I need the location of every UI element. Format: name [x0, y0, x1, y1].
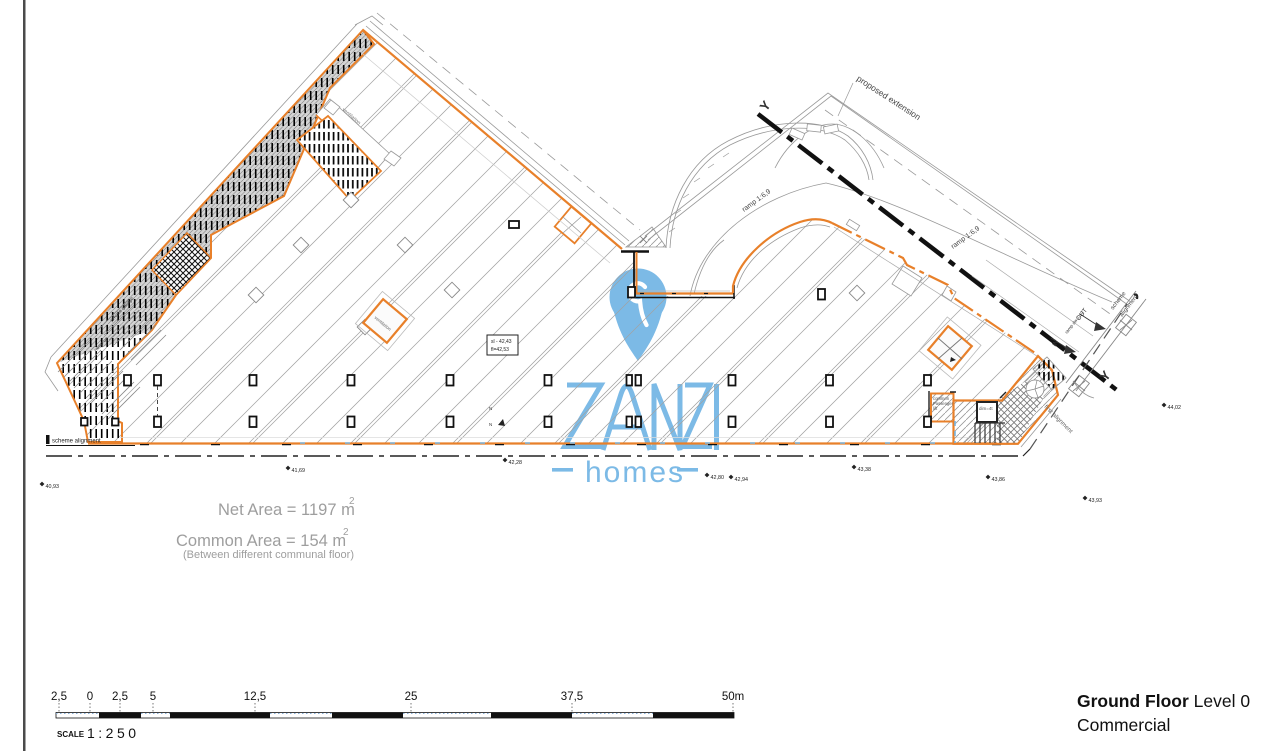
svg-text:5: 5: [150, 691, 156, 703]
svg-text:SCALE: SCALE: [57, 730, 85, 739]
svg-text:43,93: 43,93: [1089, 498, 1103, 504]
svg-text:Y: Y: [1097, 368, 1114, 384]
svg-text:2: 2: [343, 527, 349, 538]
svg-text:12,5: 12,5: [244, 691, 266, 703]
svg-text:42,28: 42,28: [509, 460, 523, 466]
svg-text:N: N: [489, 422, 492, 427]
svg-text:proposed extension: proposed extension: [855, 73, 923, 122]
svg-text:41,69: 41,69: [292, 468, 306, 474]
svg-text:42,94: 42,94: [735, 477, 749, 483]
svg-text:1:250: 1:250: [87, 725, 140, 741]
svg-text:25: 25: [405, 691, 418, 703]
svg-text:ramp 1:6,9: ramp 1:6,9: [950, 225, 981, 250]
svg-text:first alignment: first alignment: [1043, 404, 1074, 435]
svg-text:sl - 42,43: sl - 42,43: [491, 339, 512, 345]
svg-text:homes: homes: [585, 456, 685, 489]
svg-text:44,02: 44,02: [1168, 405, 1182, 411]
svg-text:Net Area = 1197 m: Net Area = 1197 m: [218, 501, 355, 519]
svg-text:43,86: 43,86: [992, 477, 1006, 483]
svg-text:0: 0: [87, 691, 93, 703]
svg-text:N: N: [489, 406, 492, 411]
svg-text:43,38: 43,38: [858, 467, 872, 473]
svg-text:fl=42,53: fl=42,53: [491, 347, 509, 353]
svg-text:dim=4t: dim=4t: [979, 406, 993, 411]
svg-text:2,5: 2,5: [112, 691, 128, 703]
svg-text:(Between different communal fl: (Between different communal floor): [183, 549, 354, 561]
svg-text:Y: Y: [757, 98, 774, 114]
svg-text:Common Area = 154 m: Common Area = 154 m: [176, 532, 346, 550]
svg-text:50m: 50m: [722, 691, 744, 703]
svg-text:2: 2: [349, 496, 355, 507]
svg-text:37,5: 37,5: [561, 691, 583, 703]
svg-text:ramp 1:6,9: ramp 1:6,9: [741, 188, 772, 213]
svg-text:scheme alignment: scheme alignment: [52, 439, 101, 445]
svg-text:Commercial: Commercial: [1077, 715, 1170, 735]
svg-text:2,5: 2,5: [51, 691, 67, 703]
svg-text:Ground Floor Level 0: Ground Floor Level 0: [1077, 691, 1250, 711]
svg-text:40,93: 40,93: [46, 484, 60, 490]
svg-text:42,80: 42,80: [711, 475, 725, 481]
svg-text:ramp dw 1:10: ramp dw 1:10: [1064, 310, 1085, 335]
